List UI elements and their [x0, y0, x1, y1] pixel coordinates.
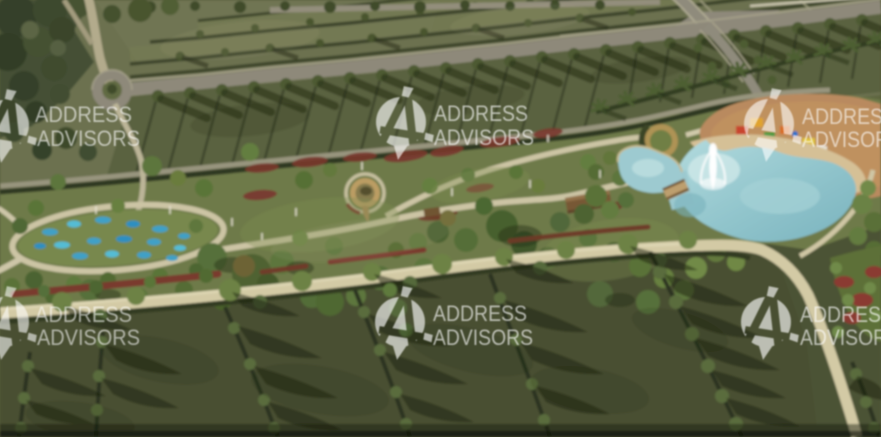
- svg-text:ADVISORS: ADVISORS: [433, 325, 533, 350]
- svg-text:ADDRESS: ADDRESS: [35, 302, 132, 327]
- svg-text:ADVISORS: ADVISORS: [434, 125, 534, 150]
- svg-text:ADVISORS: ADVISORS: [802, 127, 881, 152]
- svg-text:ADDRESS: ADDRESS: [800, 302, 881, 327]
- svg-text:ADDRESS: ADDRESS: [802, 104, 881, 129]
- svg-text:ADDRESS: ADDRESS: [35, 102, 132, 127]
- svg-text:ADVISORS: ADVISORS: [800, 325, 881, 350]
- svg-text:ADDRESS: ADDRESS: [434, 101, 528, 126]
- svg-text:ADVISORS: ADVISORS: [37, 126, 140, 151]
- svg-text:ADVISORS: ADVISORS: [37, 325, 140, 350]
- svg-text:ADDRESS: ADDRESS: [433, 301, 527, 326]
